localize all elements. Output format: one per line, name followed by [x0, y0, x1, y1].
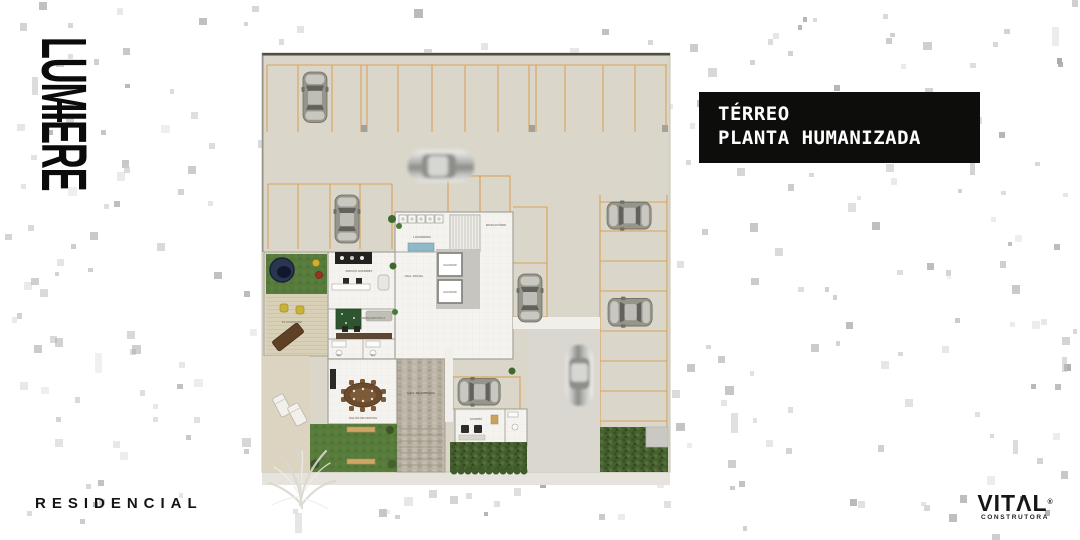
- stool: [343, 278, 349, 284]
- stool: [356, 278, 362, 284]
- label-salao-de-festas: SALÃO DE FESTAS: [349, 415, 377, 420]
- label-elevador: ELEVADOR: [443, 264, 456, 267]
- vital-subtitle: CONSTRUTORA: [972, 514, 1058, 521]
- stairs: [450, 215, 480, 252]
- label-guarita: GUARITA: [470, 417, 483, 421]
- lumiere-diaeresis-dot: [57, 109, 62, 114]
- label-elevador: ELEVADOR: [443, 291, 456, 294]
- sidewalk: [262, 472, 670, 485]
- sideboard: [330, 369, 336, 389]
- label-hall-social: HALL SOCIAL: [405, 274, 424, 278]
- plan-title-line1: TÉRREO: [718, 102, 980, 126]
- plant: [509, 368, 516, 375]
- guard-house: [455, 409, 527, 446]
- plan-title-line2: PLANTA HUMANIZADA: [718, 126, 980, 150]
- car-icon: [608, 297, 652, 328]
- garden-bench: [347, 427, 375, 432]
- guard-chair: [461, 425, 469, 433]
- vital-wordmark: VITΛL: [977, 490, 1047, 516]
- plan-title-box: TÉRREO PLANTA HUMANIZADA: [699, 92, 980, 163]
- lumiere-diaeresis-dot: [57, 101, 62, 106]
- label-lavanderia: LAVANDERIA: [413, 235, 431, 239]
- label-wc: WC: [371, 354, 375, 357]
- moving-car-icon: [408, 150, 474, 182]
- locker: [491, 415, 498, 424]
- page: LUMIERE RESIDENCIAL TÉRREO PLANTA HUMANI…: [0, 0, 1080, 540]
- label-wc: WC: [337, 354, 341, 357]
- party-room: [328, 359, 397, 424]
- plant: [388, 215, 396, 223]
- building-core: [388, 212, 513, 359]
- garden-water-feature-area: [266, 254, 327, 294]
- lumiere-wordmark: LUMIERE: [36, 37, 92, 190]
- car-icon: [517, 274, 544, 322]
- vital-logo: VITΛL® CONSTRUTORA: [972, 491, 1058, 521]
- label-espaco-gourmet: ESPAÇO GOURMET: [346, 269, 373, 273]
- guard-desk: [459, 435, 485, 440]
- lumiere-diaeresis-dot: [57, 117, 62, 122]
- wc-sink: [508, 412, 518, 417]
- plant: [390, 263, 397, 270]
- car-icon: [458, 377, 500, 407]
- lumiere-logo: LUMIERE: [36, 37, 92, 222]
- utility-pad: [646, 427, 668, 447]
- car-icon: [334, 195, 361, 243]
- wood-bench: [336, 333, 392, 339]
- washing-machines: [399, 215, 443, 223]
- registered-mark: ®: [1048, 499, 1053, 506]
- hedge: [450, 442, 527, 472]
- site-top-wall: [262, 53, 670, 56]
- floorplan: LAVANDERIA BICICLETÁRIO ELEVADOR ELEVADO…: [262, 53, 670, 485]
- label-playground: PLAYGROUND: [282, 320, 302, 324]
- label-bicicletario: BICICLETÁRIO: [486, 222, 507, 227]
- armchair: [378, 275, 389, 290]
- wc-sink: [366, 341, 380, 347]
- plant: [396, 223, 402, 229]
- elevators: [436, 249, 480, 309]
- guard-chair: [474, 425, 482, 433]
- entry-wall: [445, 349, 453, 422]
- garden-seat-yellow: [313, 260, 320, 267]
- car-icon: [607, 200, 651, 230]
- residencial-label: RESIDENCIAL: [35, 495, 203, 512]
- label-hall-de-entrada: HALL DE ENTRADA: [407, 391, 435, 395]
- plant: [392, 309, 398, 315]
- garden-seat-red: [316, 272, 323, 279]
- laundry-counter: [408, 243, 434, 251]
- car-icon: [302, 72, 329, 122]
- moving-car-icon: [566, 345, 593, 406]
- garden-bench: [347, 459, 375, 464]
- wc-sink: [332, 341, 346, 347]
- toilet: [512, 424, 518, 430]
- label-brinquedoteca: BRINQUEDOTECA: [361, 316, 386, 320]
